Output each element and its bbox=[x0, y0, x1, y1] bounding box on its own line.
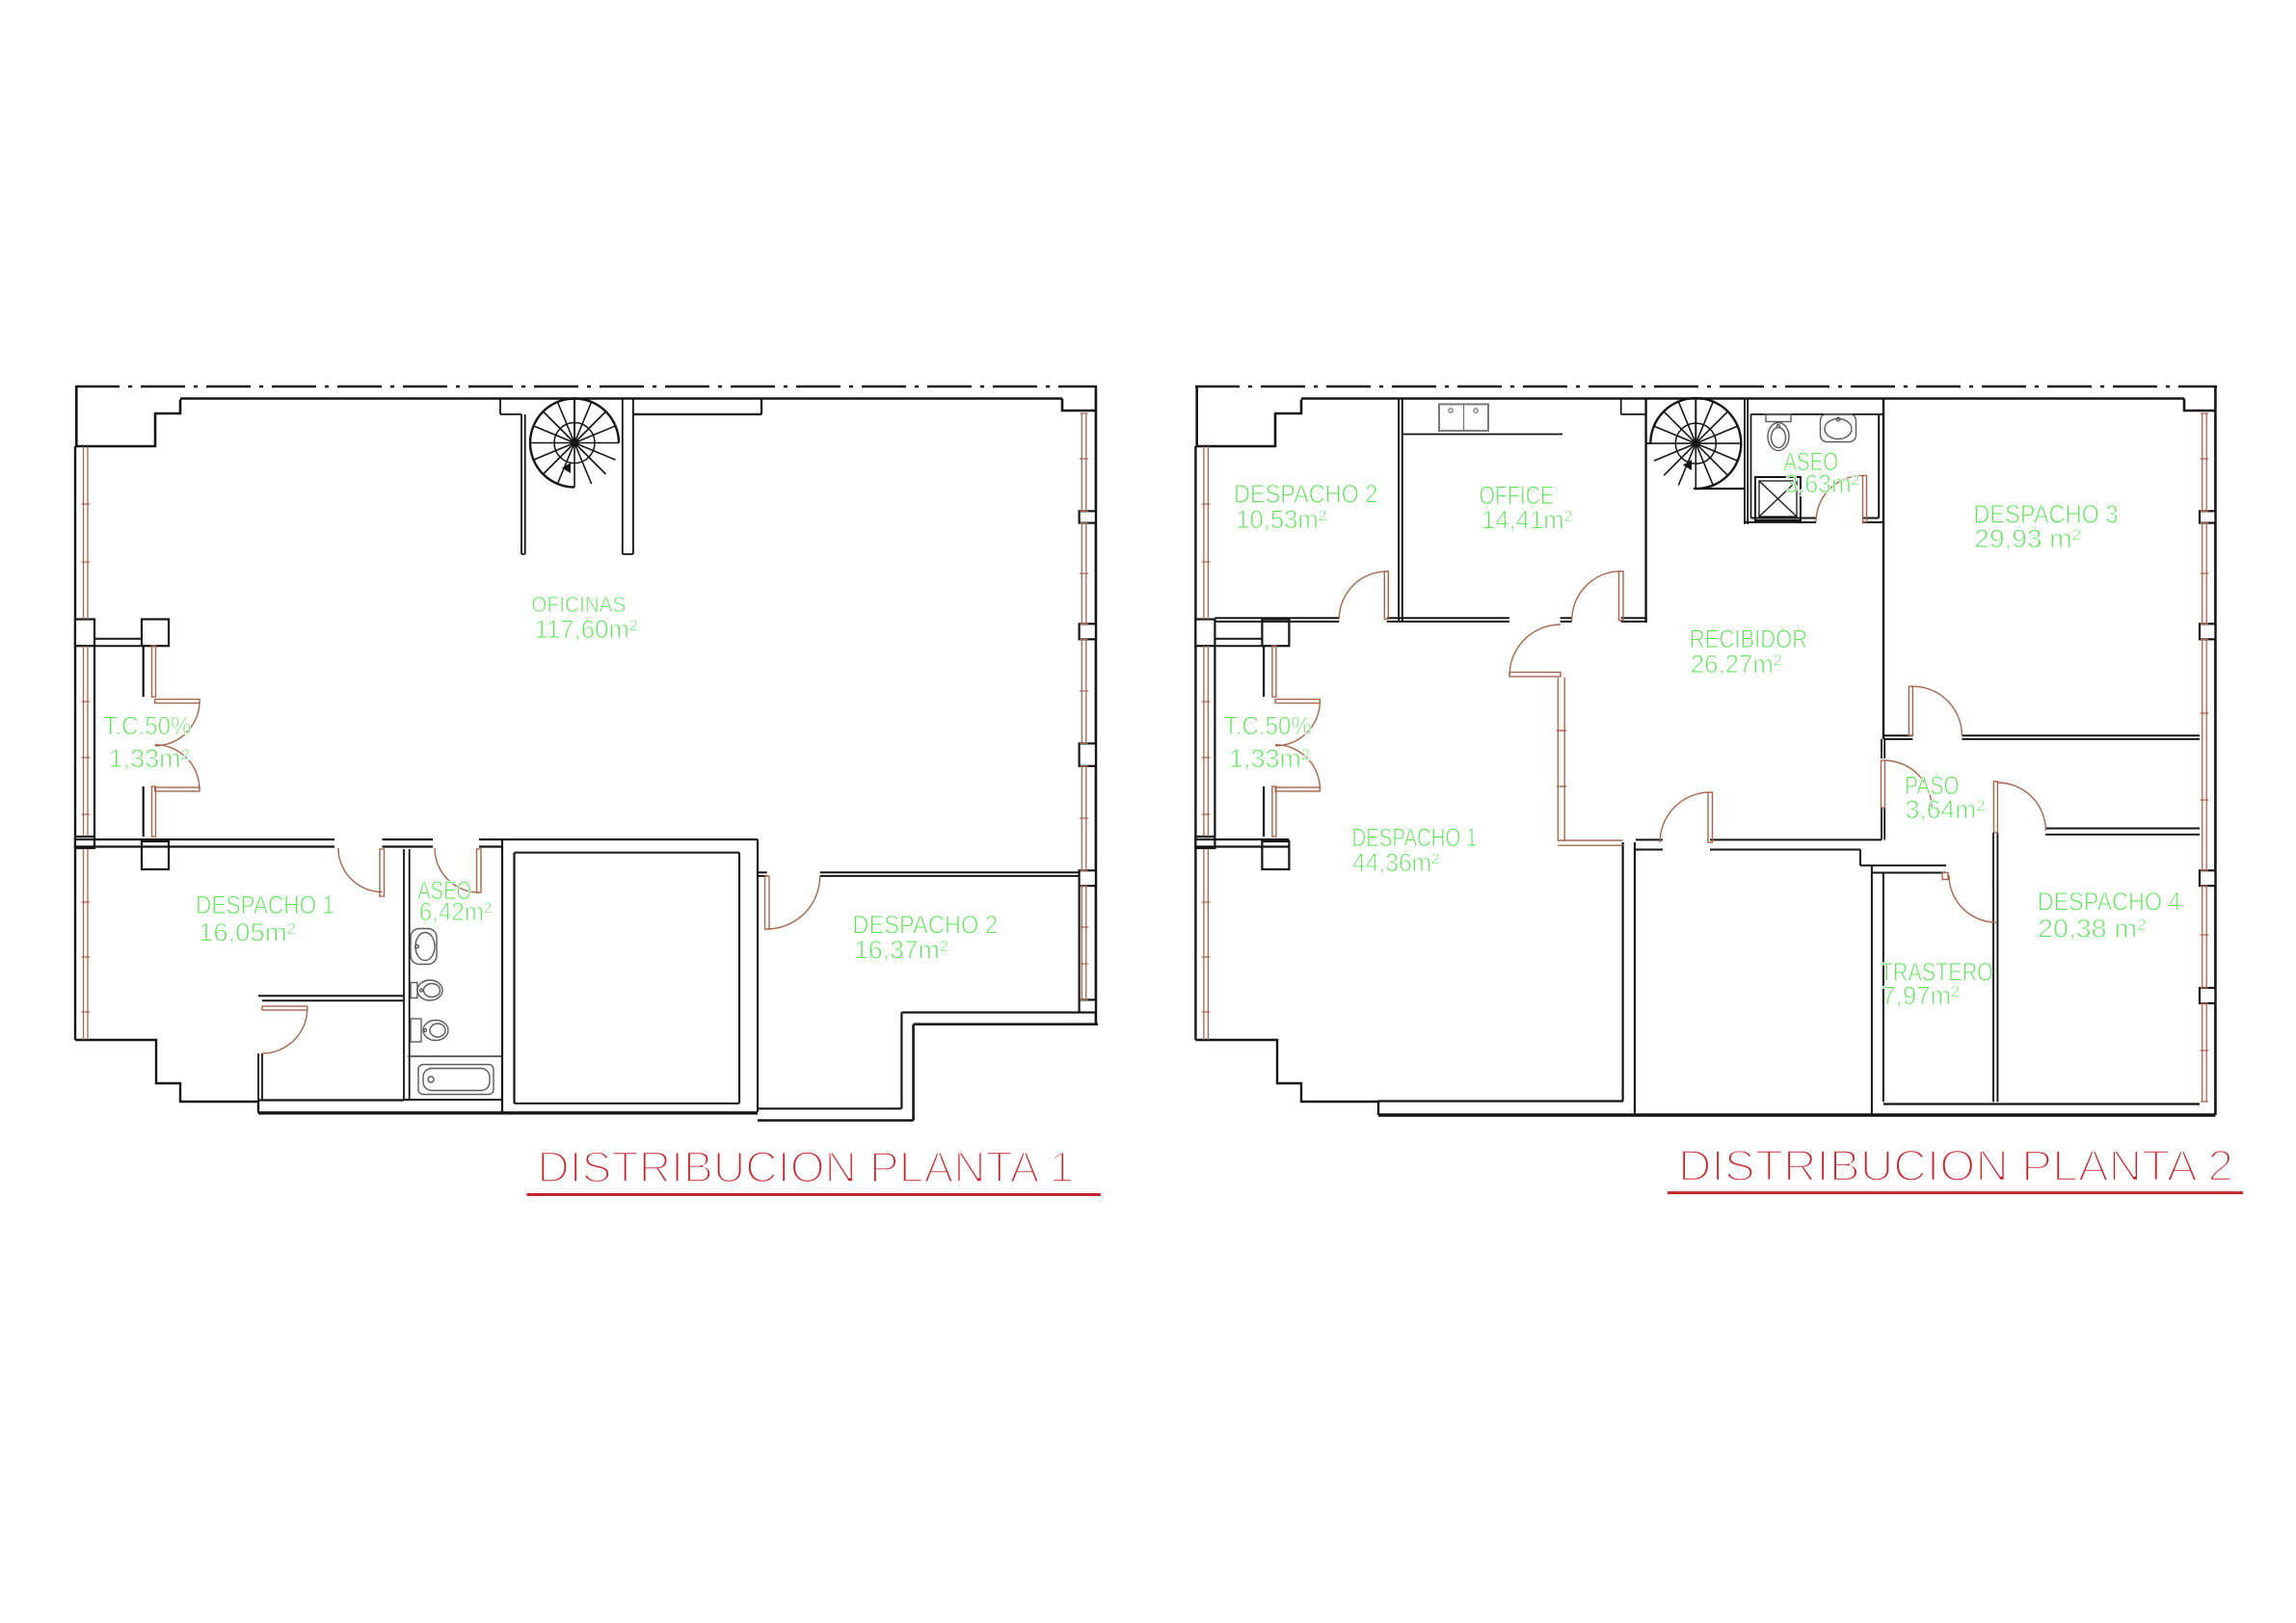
svg-text:DESPACHO 2: DESPACHO 2 bbox=[1234, 479, 1377, 508]
svg-text:T.C.50%: T.C.50% bbox=[1224, 711, 1312, 740]
svg-text:20,38 m²: 20,38 m² bbox=[2038, 915, 2147, 944]
svg-text:6,42m²: 6,42m² bbox=[419, 897, 493, 926]
svg-text:14,41m²: 14,41m² bbox=[1482, 505, 1572, 534]
svg-text:16,05m²: 16,05m² bbox=[199, 918, 296, 947]
svg-text:T.C.50%: T.C.50% bbox=[103, 711, 191, 740]
svg-text:44,36m²: 44,36m² bbox=[1352, 848, 1440, 877]
svg-text:DESPACHO 1: DESPACHO 1 bbox=[196, 891, 334, 919]
svg-text:3,63m²: 3,63m² bbox=[1785, 469, 1859, 498]
svg-text:1,33m²: 1,33m² bbox=[109, 744, 190, 773]
svg-text:7,97m²: 7,97m² bbox=[1882, 981, 1960, 1010]
svg-text:DISTRIBUCION PLANTA 2: DISTRIBUCION PLANTA 2 bbox=[1678, 1141, 2233, 1190]
svg-text:OFICINAS: OFICINAS bbox=[531, 592, 626, 617]
svg-text:DESPACHO 4: DESPACHO 4 bbox=[2038, 887, 2181, 916]
svg-text:DISTRIBUCION PLANTA 1: DISTRIBUCION PLANTA 1 bbox=[537, 1143, 1074, 1192]
svg-text:1,33m²: 1,33m² bbox=[1229, 744, 1310, 773]
svg-text:16,37m²: 16,37m² bbox=[854, 936, 948, 965]
svg-text:10,53m²: 10,53m² bbox=[1236, 505, 1326, 534]
svg-text:29,93 m²: 29,93 m² bbox=[1974, 524, 2081, 553]
svg-text:3,64m²: 3,64m² bbox=[1906, 795, 1986, 824]
svg-text:117,60m²: 117,60m² bbox=[535, 615, 638, 644]
svg-text:26,27m²: 26,27m² bbox=[1691, 650, 1782, 678]
